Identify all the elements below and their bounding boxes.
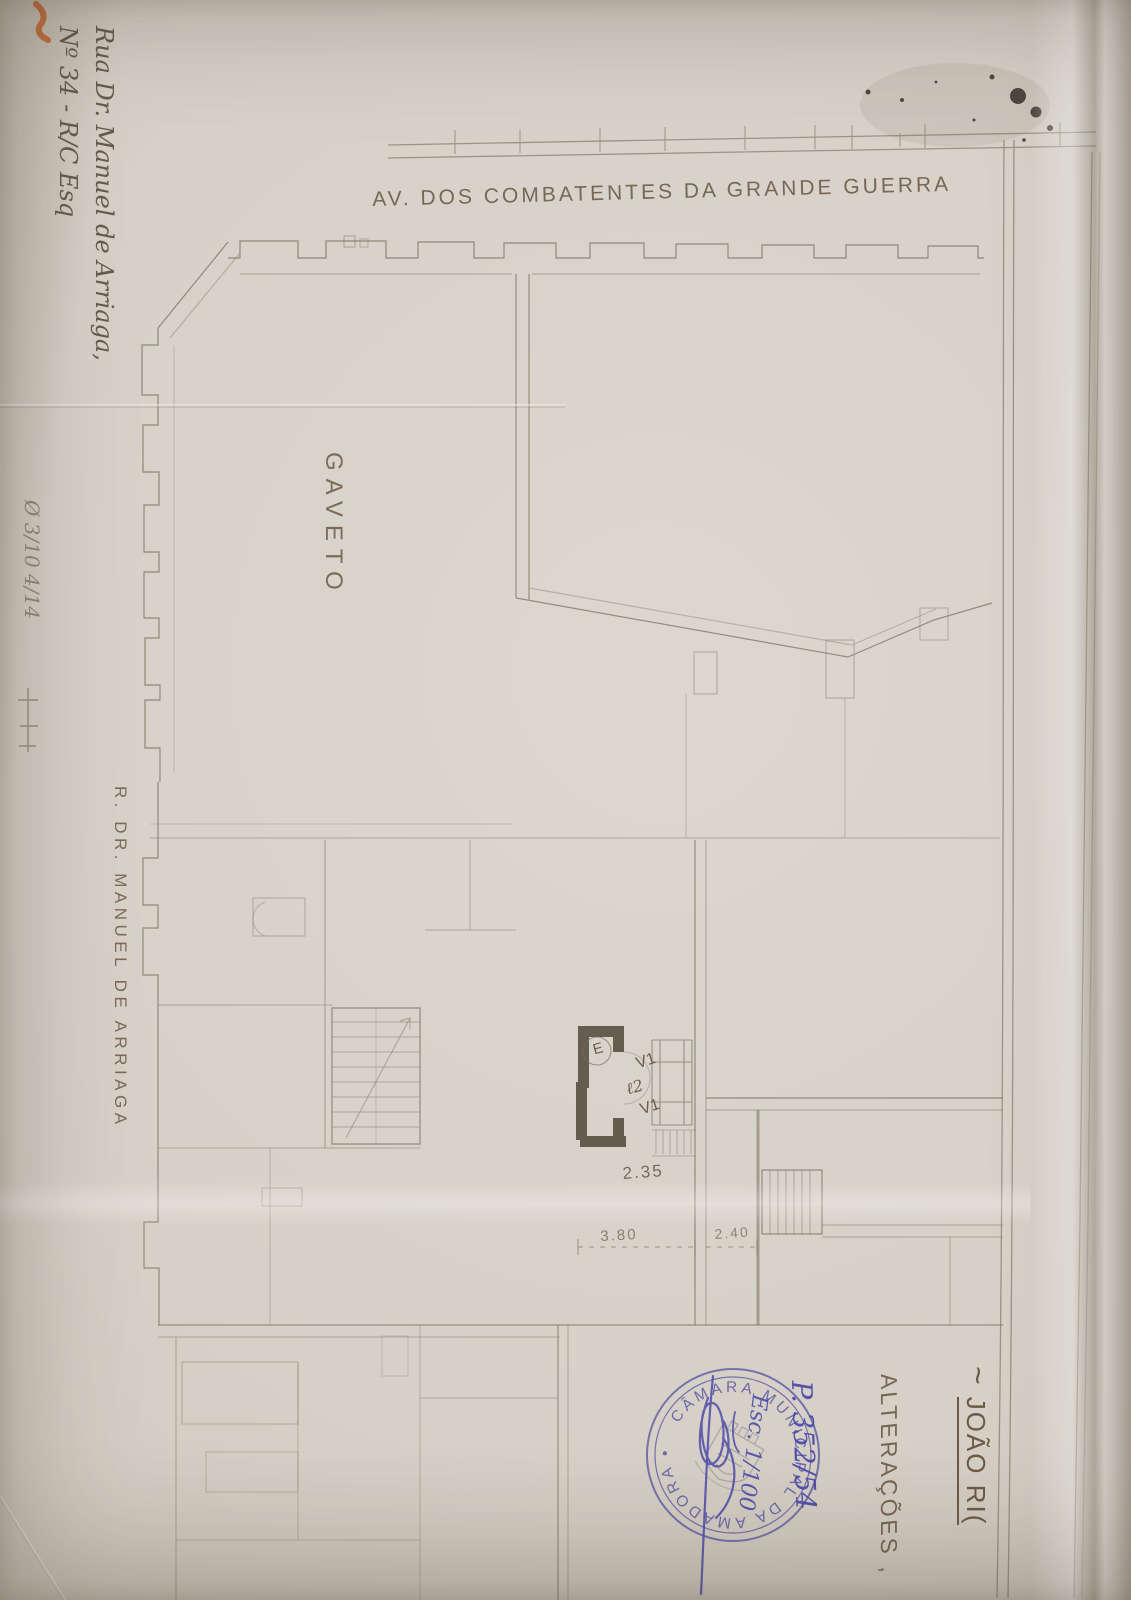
bottom-rooms (158, 1325, 1003, 1600)
ink-blots (860, 63, 1053, 147)
corridor-right-rooms (695, 840, 1003, 1325)
municipal-stamp: CÂMARA MUNICIPAL DA AMADORA • (616, 1338, 851, 1573)
scanned-floor-plan-page: CÂMARA MUNICIPAL DA AMADORA • AV. DOS CO… (0, 0, 1131, 1600)
margin-tick-marks (18, 688, 38, 752)
entrance-core-walls (576, 1026, 626, 1147)
orange-crayon-mark (36, 4, 48, 40)
upper-courtyard (516, 274, 992, 838)
svg-text:CÂMARA MUNICIPAL DA AMADORA •: CÂMARA MUNICIPAL DA AMADORA • (629, 1351, 838, 1560)
building-outline (142, 241, 984, 782)
apartment-walls (143, 782, 1000, 1325)
plan-drawing: CÂMARA MUNICIPAL DA AMADORA • (0, 0, 1131, 1600)
stamp-ring-text: CÂMARA MUNICIPAL DA AMADORA • (629, 1351, 838, 1560)
street-lines (388, 122, 1100, 1598)
staircase-main (332, 1008, 420, 1144)
dimension-lines (578, 1239, 757, 1255)
service-stair (762, 1170, 822, 1234)
stamp-rings (616, 1338, 851, 1573)
